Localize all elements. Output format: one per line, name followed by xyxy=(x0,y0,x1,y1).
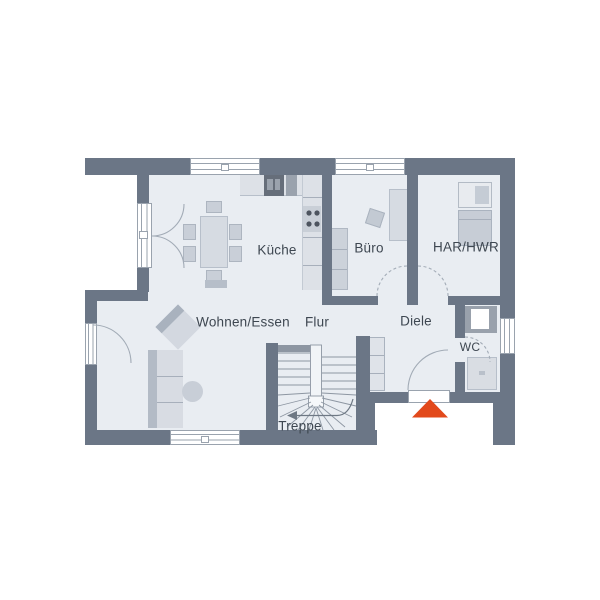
window-office xyxy=(335,158,405,175)
kitchen-appliance xyxy=(286,175,297,196)
dining-table xyxy=(200,216,228,268)
wall-wc-left-a xyxy=(455,296,465,338)
wc-shower-tray xyxy=(467,357,497,390)
french-door-frame xyxy=(137,203,152,268)
kitchen-sink-unit xyxy=(264,175,284,196)
room-label-treppe: Treppe xyxy=(278,419,321,434)
wall-top xyxy=(85,158,515,175)
cooktop xyxy=(303,206,321,232)
kitchen-counter-side xyxy=(302,175,322,290)
room-label-kueche: Küche xyxy=(257,243,296,258)
wall-left-upper-a xyxy=(137,175,149,205)
window-wc xyxy=(500,318,515,354)
entry-door-leaf xyxy=(408,390,450,403)
tv-board xyxy=(205,280,227,288)
dining-chair xyxy=(229,246,242,262)
sofa-backrest xyxy=(148,350,157,428)
wall-left xyxy=(85,290,97,445)
office-shelf xyxy=(330,228,348,290)
room-label-diele: Diele xyxy=(400,314,432,329)
wall-left-upper-b xyxy=(137,266,149,292)
room-label-flur: Flur xyxy=(305,315,329,330)
ottoman xyxy=(182,381,203,402)
dining-chair xyxy=(229,224,242,240)
room-label-har-hwr: HAR/HWR xyxy=(433,240,499,255)
wall-hall-left xyxy=(327,296,378,305)
sofa xyxy=(148,350,183,428)
dining-chair xyxy=(206,201,222,213)
dining-chair xyxy=(183,224,196,240)
wall-entry-step xyxy=(356,402,375,445)
wall-wc-left-b xyxy=(455,362,465,394)
floor-lower-left xyxy=(90,290,370,440)
terrace-door-frame xyxy=(85,323,97,365)
window-dining xyxy=(190,158,260,175)
dining-chair xyxy=(183,246,196,262)
wall-entry-right xyxy=(448,392,500,403)
floorplan-canvas: Wohnen/Essen Küche Büro HAR/HWR Flur Die… xyxy=(0,0,600,600)
wall-office-utility xyxy=(407,165,418,305)
sofa-seat xyxy=(157,350,183,428)
wc-sink-unit xyxy=(464,306,497,333)
wall-kitchen-office xyxy=(322,165,332,305)
stairs-top-rail xyxy=(278,345,310,352)
room-label-wohnen-essen: Wohnen/Essen xyxy=(196,315,290,330)
room-label-buero: Büro xyxy=(354,241,383,256)
wall-stairs-left xyxy=(266,343,278,433)
room-label-wc: WC xyxy=(460,340,480,354)
utility-appliance-washer xyxy=(458,182,492,208)
window-living xyxy=(170,430,240,445)
